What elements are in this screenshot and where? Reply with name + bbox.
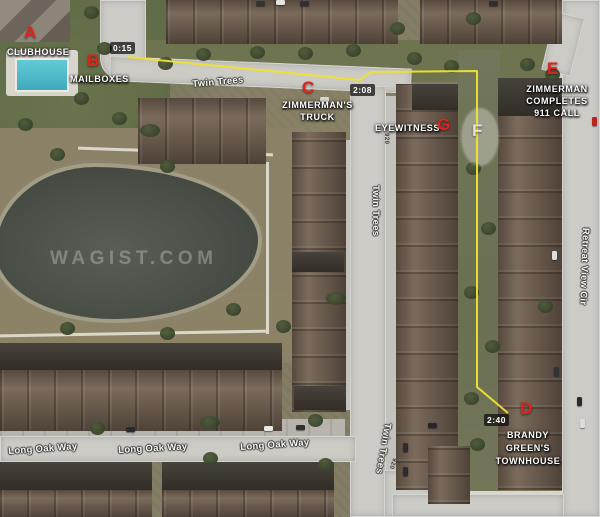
building-bottom-row-2-flat: [162, 462, 334, 490]
building-row-top-2: [420, 0, 562, 44]
address-920-mid: 920: [383, 133, 389, 145]
label-zimmerman-911: ZIMMERMAN COMPLETES 911 CALL: [516, 83, 598, 119]
building-bottom-right-small: [428, 446, 470, 504]
tree: [298, 47, 313, 60]
marker-b: B: [87, 52, 99, 69]
watermark: WAGIST.COM: [50, 248, 217, 270]
building-row-right-center: [396, 84, 458, 490]
tree: [158, 57, 173, 70]
marker-c: C: [302, 79, 314, 96]
marker-e: E: [547, 60, 558, 77]
tree: [485, 340, 500, 353]
tree: [250, 46, 265, 59]
time-badge-240: 2:40: [484, 414, 509, 426]
label-mailboxes: MAILBOXES: [70, 73, 129, 85]
car: [264, 426, 273, 431]
marker-g: G: [437, 116, 450, 133]
tree: [74, 92, 89, 105]
tree: [407, 52, 422, 65]
pool: [15, 58, 69, 92]
tree: [390, 22, 405, 35]
building-bottom-row-1-flat: [0, 462, 152, 490]
tree: [276, 320, 291, 333]
tree: [538, 300, 553, 313]
tree: [464, 392, 479, 405]
tree: [464, 286, 479, 299]
car: [428, 423, 437, 428]
tree: [470, 438, 485, 451]
car: [552, 251, 557, 260]
tree: [90, 422, 105, 435]
car: [554, 367, 559, 376]
tree: [346, 44, 361, 57]
label-zimmermans-truck: ZIMMERMAN'S TRUCK: [280, 99, 355, 123]
car: [403, 467, 408, 476]
tree: [140, 124, 160, 137]
sidewalk-pond-east: [266, 162, 269, 334]
label-eyewitness: EYEWITNESS: [375, 122, 440, 134]
street-twin-trees-top: Twin Trees: [192, 76, 244, 90]
building-bottom-left-flat: [0, 343, 282, 370]
time-badge-015: 0:15: [110, 42, 135, 54]
tree: [520, 58, 535, 71]
road-bottom-right: [392, 494, 564, 517]
street-twin-trees-mid: Twin Trees: [370, 185, 380, 236]
tree: [60, 322, 75, 335]
tree: [112, 112, 127, 125]
satellite-map: Twin Trees Twin Trees Twin Trees Retreat…: [0, 0, 600, 517]
tree: [444, 60, 459, 73]
building-bottom-row-2-gabled: [162, 490, 334, 517]
building-row-center-dark-2: [294, 386, 346, 410]
car: [256, 1, 265, 6]
car: [300, 1, 309, 6]
building-row-center: [292, 132, 346, 412]
car: [126, 427, 135, 432]
time-badge-208: 2:08: [350, 84, 375, 96]
label-brandy-greens-line2: TOWNHOUSE: [484, 455, 572, 468]
label-brandy-greens-line1: BRANDY GREEN'S: [484, 429, 572, 455]
car: [296, 425, 305, 430]
car: [577, 397, 582, 406]
tree: [84, 6, 99, 19]
car: [276, 0, 285, 5]
tree: [466, 12, 481, 25]
tree: [200, 416, 220, 429]
label-zimmermans-truck-line2: TRUCK: [280, 111, 355, 123]
tree: [318, 458, 333, 471]
tree: [160, 327, 175, 340]
building-row-top-1: [166, 0, 398, 44]
car: [403, 443, 408, 452]
tree: [226, 303, 241, 316]
label-zimmermans-truck-line1: ZIMMERMAN'S: [280, 99, 355, 111]
tree: [326, 292, 346, 305]
tree: [196, 48, 211, 61]
car: [489, 1, 498, 6]
street-retreat-view-cir: Retreat View Cir: [577, 228, 590, 306]
car: [580, 419, 585, 428]
marker-f: F: [472, 122, 482, 139]
building-bottom-left-gabled: [0, 370, 282, 431]
building-bottom-row-1-gabled: [0, 490, 152, 517]
building-row-center-dark-1: [292, 252, 344, 272]
building-row-right-center-dark: [412, 84, 458, 110]
label-zimmerman-911-line1: ZIMMERMAN: [516, 83, 598, 95]
tree: [203, 452, 218, 465]
label-zimmerman-911-line2: COMPLETES: [516, 95, 598, 107]
marker-a: A: [24, 24, 36, 41]
label-brandy-greens: BRANDY GREEN'S TOWNHOUSE: [484, 429, 572, 468]
tree: [308, 414, 323, 427]
label-zimmerman-911-line3: 911 CALL: [516, 107, 598, 119]
tree: [481, 222, 496, 235]
tree: [50, 148, 65, 161]
tree: [18, 118, 33, 131]
marker-d: D: [520, 400, 532, 417]
tree: [160, 160, 175, 173]
label-clubhouse: CLUBHOUSE: [7, 46, 69, 58]
